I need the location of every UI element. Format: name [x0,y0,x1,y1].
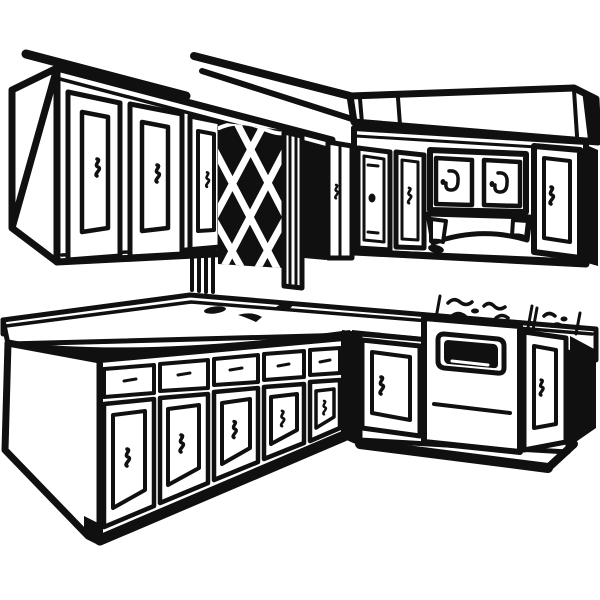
oven [424,318,520,452]
base-cabinets-right [342,318,596,468]
base-end-panel [5,343,100,542]
kitchen-line-art [0,0,600,600]
upper-cabinets-right [354,128,598,266]
cabinet-door [68,92,120,260]
page [0,0,600,600]
column-pair [284,132,302,288]
cabinet-end-panel [12,68,57,262]
kitchen-clipart [0,0,600,600]
base-cabinets-left [5,338,344,542]
